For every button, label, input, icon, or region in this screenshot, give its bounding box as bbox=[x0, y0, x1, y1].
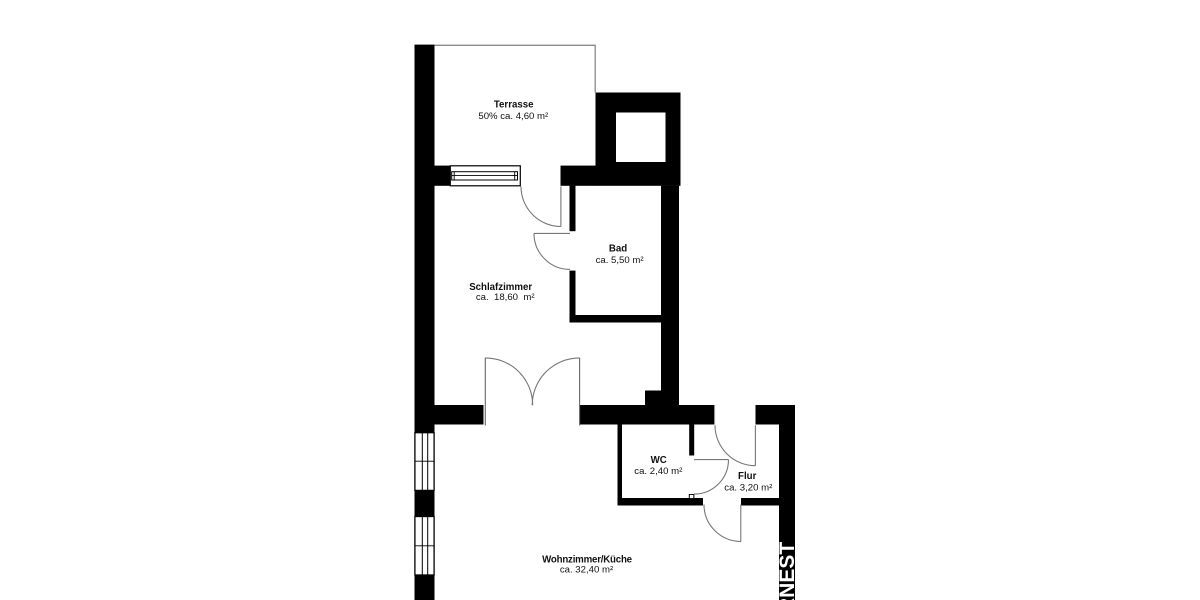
svg-text:Bad: Bad bbox=[609, 243, 627, 254]
svg-text:ca. 5,50 m²: ca. 5,50 m² bbox=[596, 255, 645, 266]
svg-text:ca. 32,40 m²: ca. 32,40 m² bbox=[560, 564, 614, 575]
svg-text:RNEST: RNEST bbox=[776, 542, 799, 600]
svg-text:ca. 3,20 m²: ca. 3,20 m² bbox=[724, 482, 773, 493]
svg-text:ca. 2,40 m²: ca. 2,40 m² bbox=[634, 466, 683, 477]
svg-text:ca. 18,60 m²: ca. 18,60 m² bbox=[476, 292, 535, 303]
svg-text:Terrasse: Terrasse bbox=[494, 99, 534, 110]
svg-text:50% ca. 4,60 m²: 50% ca. 4,60 m² bbox=[478, 111, 549, 122]
svg-text:WC: WC bbox=[651, 455, 667, 466]
svg-text:Flur: Flur bbox=[738, 471, 757, 482]
